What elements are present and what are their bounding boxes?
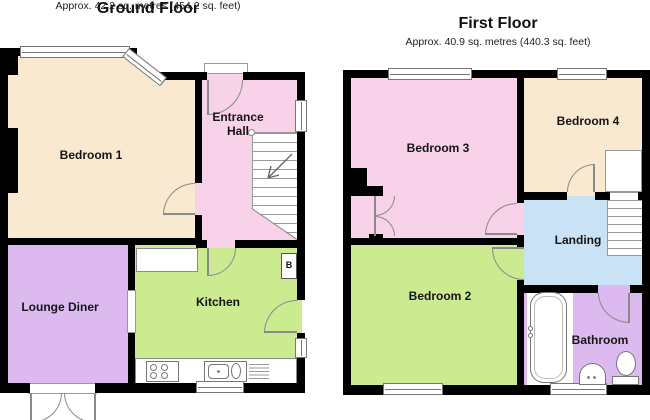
wall [343, 70, 351, 393]
kitchen-window [196, 381, 244, 393]
bedroom2-room [347, 242, 521, 385]
basin [579, 363, 606, 385]
french-door-right-swing [64, 393, 95, 420]
bathroom-label: Bathroom [540, 334, 650, 348]
hall-window [295, 100, 307, 132]
sink-half-bowl [231, 363, 241, 379]
bathtub-tap [528, 333, 533, 338]
bedroom4-window [557, 68, 607, 80]
first-floor-title: First Floor [348, 15, 648, 33]
sink-drain [217, 370, 220, 373]
boiler-label: B [282, 260, 296, 270]
wall [235, 240, 305, 248]
first-floor-plan: Bedroom 3 Bedroom 4 Landing Bedroom 2 Ba… [325, 42, 650, 420]
wall [523, 192, 567, 200]
basin-tap [593, 376, 596, 379]
bedroom1-label: Bedroom 1 [21, 149, 161, 163]
stove-burner [150, 372, 157, 379]
wall [128, 245, 135, 290]
stairwell-void [605, 150, 642, 192]
sink-drainer [249, 364, 269, 379]
ground-floor-plan: B Bedroom 1 Entrance Hall Lounge Diner K… [0, 42, 325, 420]
french-door-left-swing [31, 393, 62, 420]
basin-tap [587, 376, 590, 379]
stove-burner [161, 364, 168, 371]
wall [638, 192, 650, 200]
wall [520, 285, 598, 293]
wall [630, 285, 650, 293]
chimney-breast [343, 168, 367, 188]
toilet-bowl [616, 351, 636, 376]
entrance-hall-label: Entrance Hall [201, 111, 275, 139]
wall [517, 78, 524, 203]
wall [595, 192, 610, 200]
landing-label: Landing [538, 234, 618, 248]
lounge-kitchen-opening [127, 290, 136, 333]
bedroom3-window [388, 68, 472, 80]
wall [517, 280, 524, 385]
wall [0, 238, 202, 245]
chimney-breast [0, 128, 18, 193]
kitchen-worktop [136, 248, 198, 272]
toilet-cistern [612, 376, 639, 385]
bedroom4-label: Bedroom 4 [528, 115, 648, 129]
wall [0, 383, 30, 393]
chimney-breast [343, 186, 383, 196]
front-door-threshold [204, 63, 248, 74]
bedroom2-label: Bedroom 2 [380, 290, 500, 304]
bedroom3-label: Bedroom 3 [378, 142, 498, 156]
bedroom1-window [20, 46, 130, 58]
wall [0, 48, 8, 393]
kitchen-label: Kitchen [163, 296, 273, 310]
boiler: B [281, 253, 297, 279]
stove-burner [161, 372, 168, 379]
bedroom2-window [383, 383, 443, 395]
ground-floor-area: Approx. 42.2 sq. metres (454.2 sq. feet) [0, 0, 296, 12]
wall [128, 333, 135, 385]
floorplan-canvas: Ground Floor Approx. 42.2 sq. metres (45… [0, 0, 650, 420]
kitchen-side-window [295, 338, 307, 358]
stairs-direction-arrow [256, 152, 296, 186]
wall [243, 72, 305, 80]
stove-burner [150, 364, 157, 371]
wall [196, 240, 207, 248]
lounge-diner-label: Lounge Diner [0, 301, 120, 315]
bathtub-tap [528, 326, 533, 331]
